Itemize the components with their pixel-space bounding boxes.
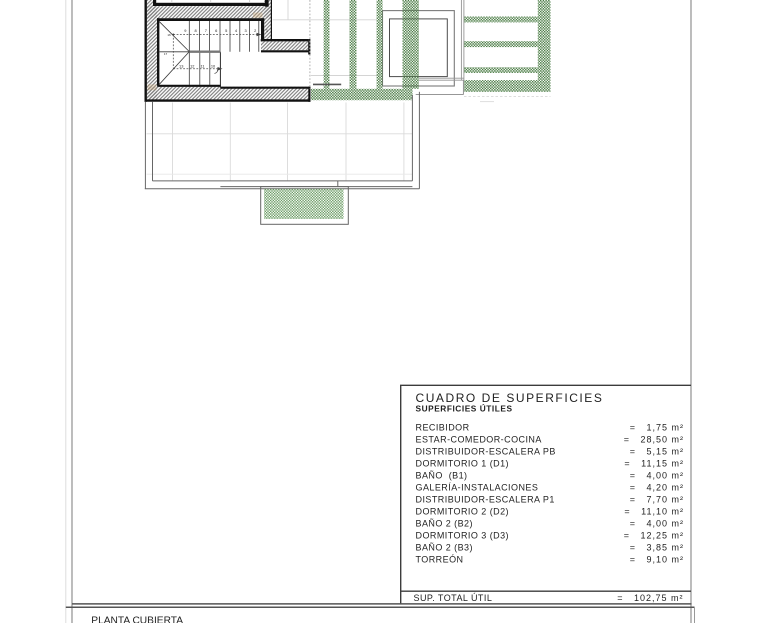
svg-text:= 102,75 m²: = 102,75 m² (617, 593, 683, 603)
svg-text:ESTAR-COMEDOR-COCINA: ESTAR-COMEDOR-COCINA (416, 435, 542, 445)
svg-text:7: 7 (205, 28, 207, 33)
svg-text:= 4,00 m²: = 4,00 m² (630, 519, 684, 529)
svg-text:SUPERFICIES ÚTILES: SUPERFICIES ÚTILES (416, 403, 513, 414)
svg-text:= 9,10 m²: = 9,10 m² (630, 554, 684, 564)
svg-text:5: 5 (225, 28, 227, 33)
svg-text:8: 8 (195, 28, 197, 33)
svg-text:BAÑO 2 (B2): BAÑO 2 (B2) (416, 519, 473, 529)
svg-text:DISTRIBUIDOR-ESCALERA PB: DISTRIBUIDOR-ESCALERA PB (416, 447, 556, 457)
svg-text:13: 13 (179, 63, 183, 68)
svg-text:= 4,00 m²: = 4,00 m² (630, 471, 684, 481)
svg-text:= 5,15 m²: = 5,15 m² (630, 447, 684, 457)
svg-text:3: 3 (245, 28, 247, 33)
svg-text:BAÑO (B1): BAÑO (B1) (416, 471, 468, 481)
svg-text:12: 12 (190, 63, 194, 68)
svg-text:TORREÓN: TORREÓN (416, 554, 464, 564)
svg-text:= 11,15 m²: = 11,15 m² (624, 459, 684, 469)
svg-text:4: 4 (235, 28, 238, 33)
svg-text:10: 10 (211, 63, 216, 68)
svg-text:= 11,10 m²: = 11,10 m² (624, 507, 684, 517)
svg-text:= 7,70 m²: = 7,70 m² (630, 495, 684, 505)
svg-text:RECIBIDOR: RECIBIDOR (416, 423, 470, 433)
svg-text:16: 16 (167, 33, 171, 37)
svg-text:6: 6 (215, 28, 217, 33)
svg-text:DORMITORIO 1 (D1): DORMITORIO 1 (D1) (416, 459, 510, 469)
svg-text:DORMITORIO 3 (D3): DORMITORIO 3 (D3) (416, 530, 510, 540)
svg-text:11: 11 (200, 63, 204, 68)
svg-text:2: 2 (254, 28, 256, 33)
svg-text:= 3,85 m²: = 3,85 m² (630, 542, 684, 552)
svg-text:9: 9 (184, 28, 186, 33)
svg-text:GALERÍA-INSTALACIONES: GALERÍA-INSTALACIONES (416, 483, 539, 493)
svg-text:PLANTA CUBIERTA: PLANTA CUBIERTA (91, 616, 183, 623)
svg-text:17: 17 (164, 52, 168, 56)
svg-text:= 28,50 m²: = 28,50 m² (624, 435, 684, 445)
svg-text:DORMITORIO 2 (D2): DORMITORIO 2 (D2) (416, 507, 510, 517)
svg-text:DISTRIBUIDOR-ESCALERA P1: DISTRIBUIDOR-ESCALERA P1 (416, 495, 555, 505)
svg-text:= 4,20 m²: = 4,20 m² (630, 483, 684, 493)
svg-text:= 1,75 m²: = 1,75 m² (630, 423, 684, 433)
svg-text:BAÑO 2 (B3): BAÑO 2 (B3) (416, 542, 473, 552)
svg-text:= 12,25 m²: = 12,25 m² (624, 530, 684, 540)
svg-text:SUP. TOTAL ÚTIL: SUP. TOTAL ÚTIL (414, 593, 493, 603)
svg-text:1: 1 (266, 28, 268, 33)
